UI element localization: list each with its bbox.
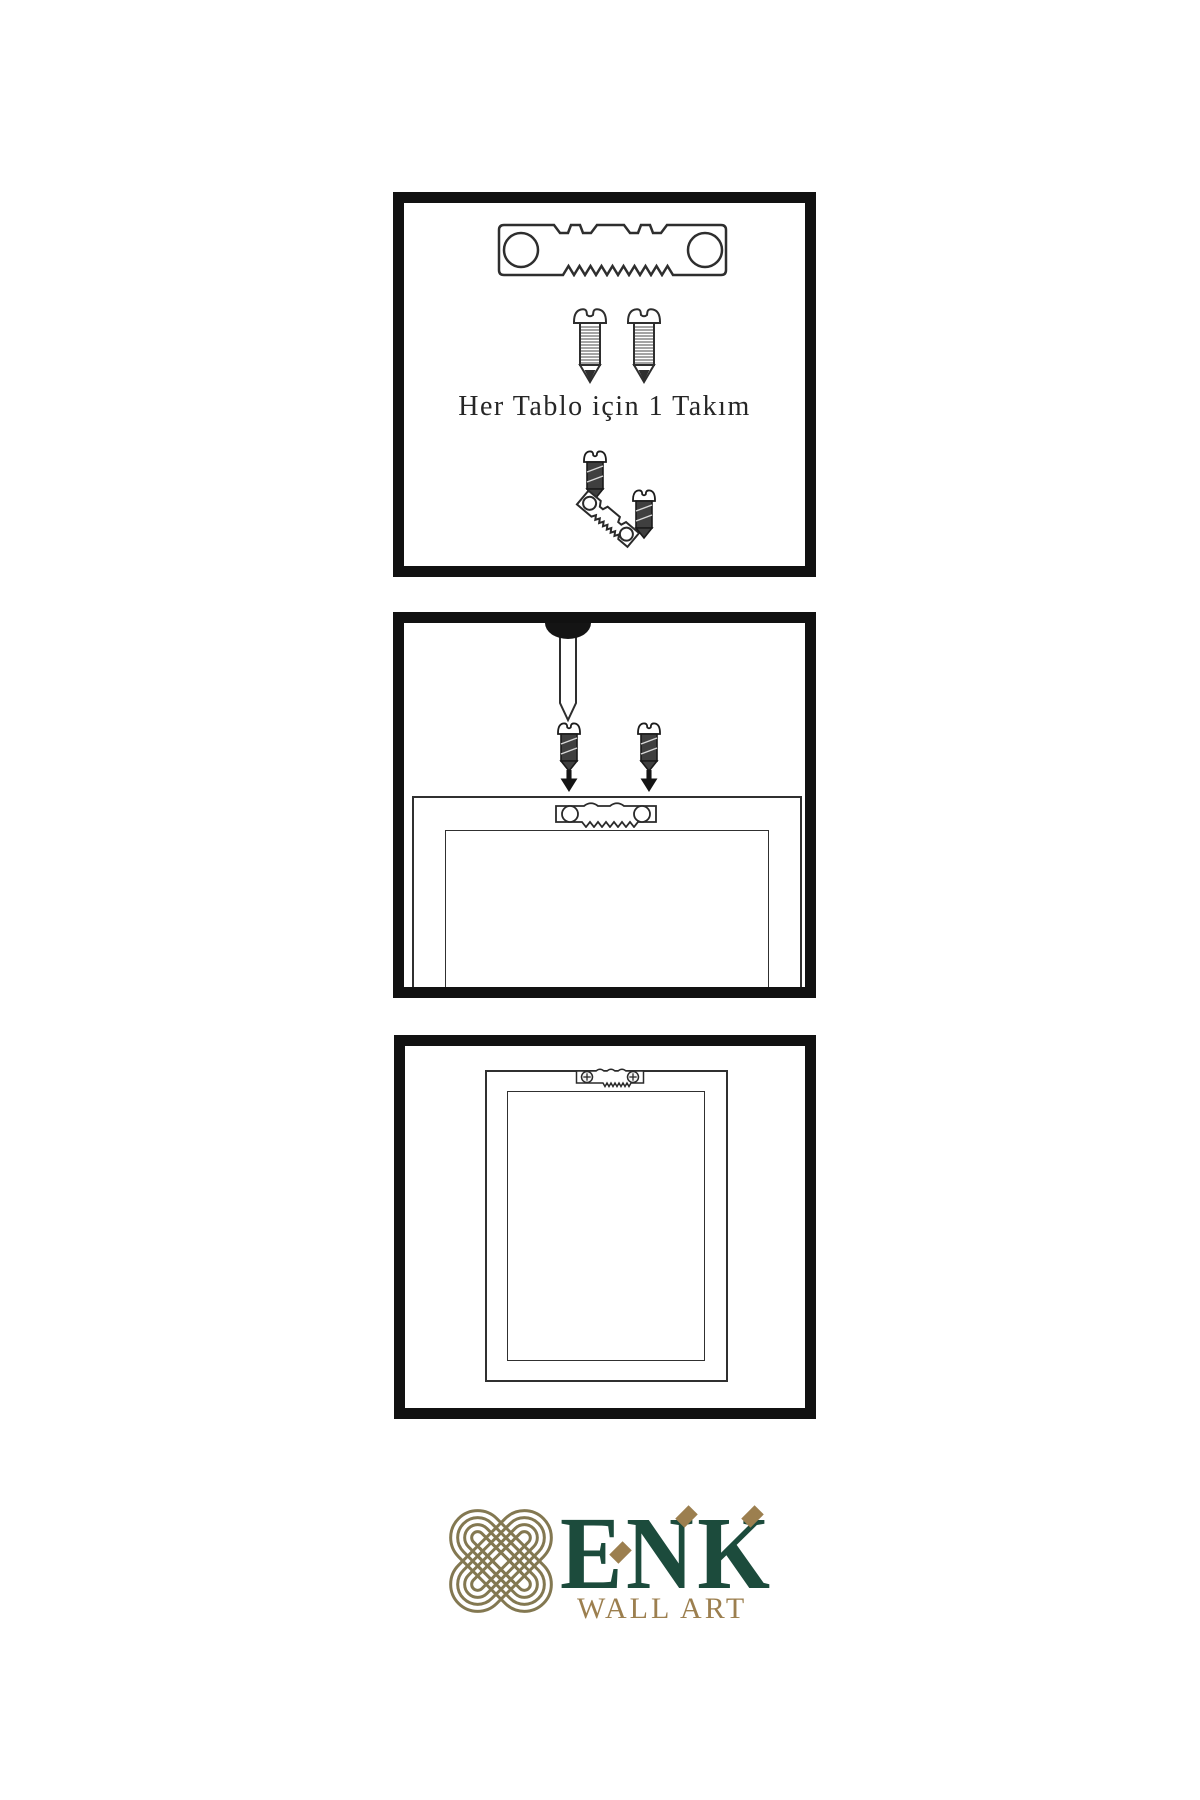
instruction-sheet: Her Tablo için 1 Takım <box>0 0 1200 1800</box>
screw-dark-icon <box>631 488 657 540</box>
sawtooth-hanger-icon <box>554 802 658 828</box>
frame-back-inner-outline <box>445 830 769 998</box>
frame-back-inner-outline <box>507 1091 705 1361</box>
wall-nail-icon <box>544 623 592 723</box>
sawtooth-hanger-icon <box>497 223 728 277</box>
brand-subtitle: WALL ART <box>577 1594 747 1624</box>
kit-caption: Her Tablo için 1 Takım <box>404 391 805 423</box>
screw-dark-icon <box>636 721 662 773</box>
panel-mounted-frame <box>394 1035 816 1419</box>
knot-icon <box>437 1494 565 1628</box>
down-arrow-icon <box>639 770 659 792</box>
panel-hardware-kit: Her Tablo için 1 Takım <box>393 192 816 577</box>
panel-hanging-instructions <box>393 612 816 998</box>
down-arrow-icon <box>559 770 579 792</box>
mounted-sawtooth-hanger-icon <box>575 1067 645 1090</box>
brand-logo: ENK WALL ART <box>400 1480 820 1680</box>
screw-icon <box>572 306 608 386</box>
screw-icon <box>626 306 662 386</box>
screw-dark-icon <box>556 721 582 773</box>
